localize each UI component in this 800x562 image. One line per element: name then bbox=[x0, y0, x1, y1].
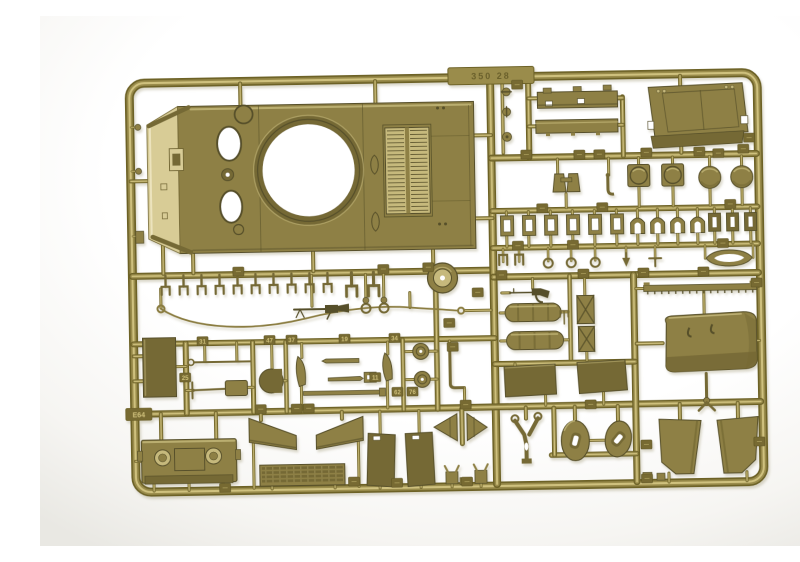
svg-text:31: 31 bbox=[199, 340, 206, 346]
part-number-tag: 25 bbox=[180, 373, 191, 382]
blank-part-tag bbox=[744, 133, 755, 142]
blank-part-tag bbox=[378, 264, 389, 273]
side-panel-2 bbox=[405, 432, 435, 486]
model-kit-sprue-photo: 350 28E64314737193425116276 bbox=[40, 16, 800, 546]
part-number-tag: 34 bbox=[389, 333, 400, 342]
part-number-tag: 19 bbox=[339, 334, 350, 343]
part-number-tag: 31 bbox=[197, 337, 208, 346]
part-number-tag: 62 bbox=[392, 387, 403, 396]
blank-part-tag bbox=[754, 437, 765, 446]
blank-part-tag bbox=[738, 144, 749, 153]
tarp-roll-1 bbox=[505, 303, 561, 322]
blank-part-tag bbox=[391, 478, 402, 487]
blank-part-tag bbox=[641, 148, 652, 157]
blank-part-tag bbox=[751, 278, 762, 287]
blank-part-tag bbox=[512, 241, 523, 250]
stowage-plate bbox=[142, 338, 176, 398]
blank-part-tag bbox=[460, 400, 471, 409]
svg-text:34: 34 bbox=[391, 336, 398, 342]
louver-grille bbox=[260, 464, 345, 486]
blank-part-tag bbox=[461, 477, 472, 486]
hatch-cover-oval-1 bbox=[561, 420, 590, 460]
fuel-cap-2 bbox=[372, 212, 380, 231]
engine-grille bbox=[383, 124, 433, 217]
blank-part-tag bbox=[641, 440, 652, 449]
flanged-hatch-1 bbox=[628, 164, 650, 186]
blank-part-tag bbox=[597, 203, 608, 212]
x-brace-panel-1 bbox=[577, 295, 594, 323]
svg-text:25: 25 bbox=[182, 376, 189, 382]
part-number-tag: 11 bbox=[370, 373, 381, 382]
blank-part-tag bbox=[578, 269, 589, 278]
engine-hatch-panel bbox=[647, 83, 748, 149]
blank-part-tag bbox=[255, 405, 266, 414]
blank-part-tag bbox=[537, 204, 548, 213]
blank-part-tag bbox=[521, 150, 532, 159]
dome-hatch-2 bbox=[731, 166, 753, 188]
blank-part-tag bbox=[725, 199, 736, 208]
round-hatch bbox=[234, 105, 252, 123]
blank-part-tag bbox=[694, 147, 705, 156]
blank-part-tag bbox=[233, 267, 244, 276]
flat-panel-1 bbox=[504, 364, 557, 397]
hatch-opening-2 bbox=[220, 190, 243, 222]
blank-part-tag bbox=[713, 149, 724, 158]
part-number-tag: 47 bbox=[264, 335, 275, 344]
svg-text:37: 37 bbox=[288, 338, 295, 344]
blank-part-tag bbox=[447, 342, 458, 351]
blank-part-tag bbox=[423, 263, 434, 272]
blank-part-tag bbox=[567, 240, 578, 249]
svg-text:11: 11 bbox=[372, 376, 379, 382]
blank-part-tag bbox=[717, 238, 728, 247]
blank-part-tag bbox=[594, 150, 605, 159]
part-number-tag: 37 bbox=[286, 335, 297, 344]
hull-rear-plate bbox=[137, 439, 241, 485]
svg-text:19: 19 bbox=[341, 337, 348, 343]
blank-part-tag bbox=[496, 270, 507, 279]
blower-part bbox=[259, 369, 283, 393]
flanged-hatch-2 bbox=[662, 164, 684, 186]
blank-part-tag bbox=[585, 400, 596, 409]
fuel-cap-1 bbox=[371, 155, 379, 174]
blank-part-tag bbox=[220, 483, 231, 492]
blank-part-tag bbox=[348, 477, 359, 486]
x-brace-panel-2 bbox=[578, 326, 594, 351]
dome-hatch-1 bbox=[699, 166, 721, 188]
gate-letter-tag: E64 bbox=[126, 408, 152, 420]
blank-part-tag bbox=[472, 288, 483, 297]
svg-text:47: 47 bbox=[266, 338, 273, 344]
gate-letter-text: E64 bbox=[133, 412, 146, 419]
blank-part-tag bbox=[444, 318, 455, 327]
blank-part-tag bbox=[638, 268, 649, 277]
flat-panel-2 bbox=[577, 360, 628, 394]
bracket-row-blocks bbox=[708, 212, 756, 231]
blank-part-tag bbox=[303, 404, 314, 413]
blank-part-tag bbox=[291, 404, 302, 413]
stowage-plate-highlight bbox=[145, 340, 146, 395]
sprue-scene: 350 28E64314737193425116276 bbox=[40, 16, 800, 546]
road-wheel-1 bbox=[413, 343, 429, 359]
hull-top-part bbox=[146, 101, 476, 254]
blank-part-tag bbox=[574, 150, 585, 159]
blank-part-tag bbox=[641, 474, 652, 483]
blank-part-tag bbox=[512, 80, 523, 89]
tarp-roll-2 bbox=[506, 331, 563, 350]
svg-text:62: 62 bbox=[394, 390, 401, 396]
svg-text:76: 76 bbox=[409, 390, 416, 396]
road-wheel-2 bbox=[414, 371, 430, 387]
fender-strip-1 bbox=[537, 85, 617, 108]
part-number-tag: 76 bbox=[407, 387, 418, 396]
mold-number-text: 350 28 bbox=[471, 71, 511, 82]
blank-part-tag bbox=[698, 267, 709, 276]
gun-shield bbox=[665, 312, 757, 373]
hatch-opening-1 bbox=[217, 126, 242, 160]
